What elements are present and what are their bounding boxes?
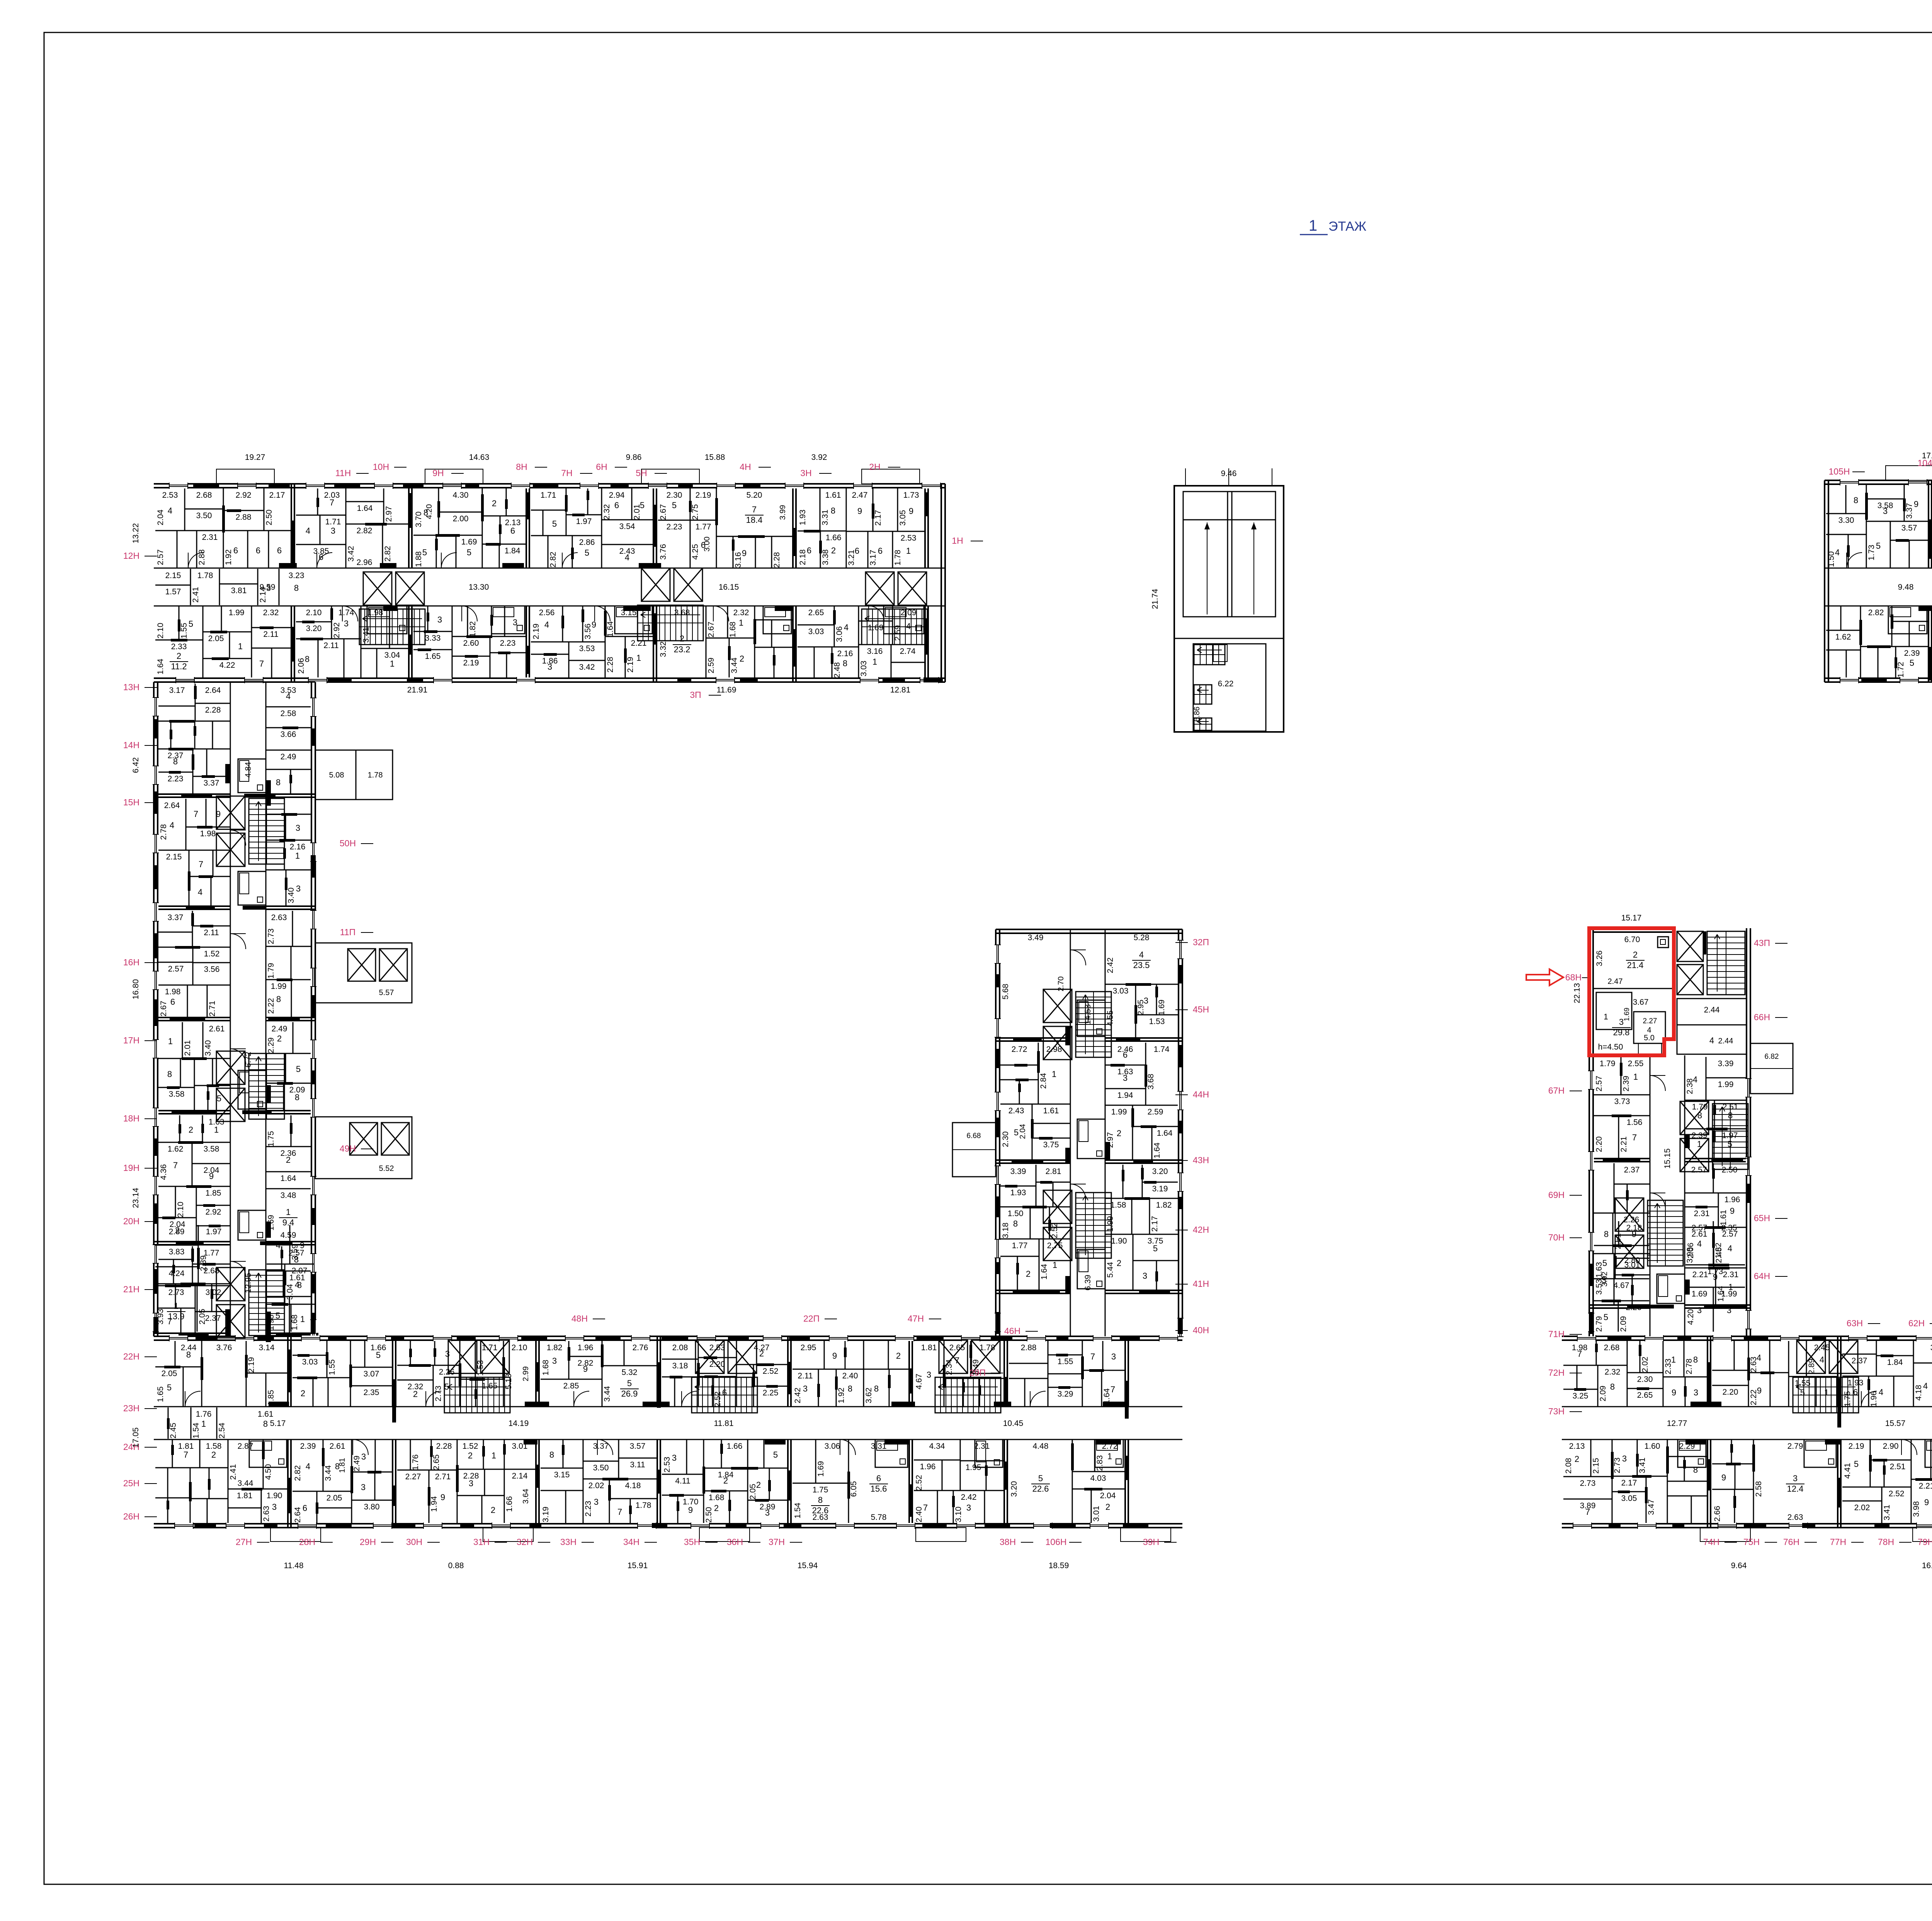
- svg-text:2.19: 2.19: [696, 491, 711, 500]
- svg-text:2.05: 2.05: [208, 634, 224, 643]
- svg-text:2.50: 2.50: [704, 1507, 713, 1523]
- svg-text:3.44: 3.44: [730, 657, 739, 673]
- svg-text:67Н: 67Н: [1548, 1086, 1565, 1096]
- svg-text:37Н: 37Н: [769, 1537, 785, 1547]
- svg-text:2.30: 2.30: [1001, 1132, 1010, 1147]
- svg-text:2.35: 2.35: [364, 1388, 379, 1397]
- svg-text:2: 2: [680, 634, 684, 643]
- svg-text:2.72: 2.72: [1102, 1442, 1118, 1451]
- svg-text:7: 7: [199, 859, 203, 869]
- svg-text:4: 4: [1647, 1026, 1651, 1035]
- svg-text:79Н: 79Н: [1918, 1537, 1932, 1547]
- svg-text:2.02: 2.02: [1641, 1357, 1650, 1373]
- svg-text:43П: 43П: [1754, 938, 1770, 948]
- svg-text:3.66: 3.66: [281, 730, 296, 739]
- svg-text:18.59: 18.59: [1049, 1561, 1069, 1570]
- svg-text:1.71: 1.71: [541, 491, 556, 500]
- svg-text:1.65: 1.65: [482, 1382, 498, 1390]
- svg-text:2.95: 2.95: [801, 1343, 816, 1352]
- svg-text:3.73: 3.73: [1614, 1097, 1630, 1106]
- svg-text:1.98: 1.98: [267, 1315, 276, 1331]
- svg-text:2: 2: [740, 654, 744, 664]
- svg-text:15Н: 15Н: [123, 797, 139, 807]
- svg-text:15.17: 15.17: [1621, 914, 1642, 922]
- svg-text:5.57: 5.57: [379, 989, 394, 997]
- svg-text:2.65: 2.65: [949, 1343, 965, 1352]
- svg-text:3.41: 3.41: [1638, 1458, 1647, 1474]
- svg-text:2.52: 2.52: [1889, 1489, 1905, 1498]
- svg-text:2.63: 2.63: [271, 913, 287, 922]
- svg-text:1: 1: [295, 851, 300, 861]
- svg-text:2.81: 2.81: [1046, 1167, 1061, 1176]
- svg-text:6: 6: [878, 546, 883, 556]
- svg-text:8: 8: [276, 778, 281, 787]
- svg-text:2: 2: [468, 1451, 473, 1460]
- svg-text:2.08: 2.08: [672, 1343, 688, 1352]
- svg-text:1: 1: [492, 1451, 496, 1460]
- svg-text:4.25: 4.25: [691, 544, 700, 560]
- svg-text:2.63: 2.63: [1787, 1513, 1803, 1522]
- svg-text:2.52: 2.52: [915, 1475, 923, 1491]
- svg-text:6: 6: [233, 546, 238, 555]
- svg-text:3.03: 3.03: [808, 627, 824, 636]
- svg-text:2.43: 2.43: [1009, 1106, 1024, 1115]
- svg-text:2: 2: [759, 1349, 764, 1358]
- svg-text:3.10: 3.10: [954, 1507, 963, 1523]
- svg-text:69Н: 69Н: [1548, 1190, 1565, 1200]
- svg-text:12.81: 12.81: [890, 686, 911, 694]
- svg-text:2.45: 2.45: [169, 1423, 178, 1439]
- svg-text:1.92: 1.92: [224, 550, 233, 565]
- svg-text:3.40: 3.40: [287, 888, 296, 903]
- svg-text:2.66: 2.66: [1713, 1506, 1722, 1522]
- svg-text:2.10: 2.10: [156, 623, 165, 639]
- svg-text:1.93: 1.93: [1848, 1378, 1864, 1387]
- svg-text:2.19: 2.19: [463, 658, 479, 667]
- svg-text:1.52: 1.52: [463, 1442, 478, 1451]
- svg-text:4: 4: [170, 820, 174, 830]
- svg-text:2: 2: [1026, 1269, 1031, 1279]
- svg-text:1.61: 1.61: [258, 1410, 274, 1419]
- svg-text:3: 3: [1697, 1305, 1702, 1315]
- svg-text:2.40: 2.40: [842, 1371, 858, 1380]
- svg-text:3.58: 3.58: [169, 1090, 185, 1099]
- svg-text:3.48: 3.48: [281, 1191, 296, 1200]
- svg-text:4.20: 4.20: [425, 504, 434, 519]
- svg-text:18.4: 18.4: [746, 515, 763, 525]
- svg-text:1.96: 1.96: [578, 1343, 594, 1352]
- svg-text:1: 1: [1107, 1451, 1112, 1461]
- svg-text:23Н: 23Н: [123, 1403, 139, 1413]
- svg-text:8: 8: [1013, 1219, 1018, 1228]
- svg-text:9: 9: [1632, 1229, 1636, 1239]
- svg-text:9: 9: [1914, 499, 1918, 509]
- svg-text:3.80: 3.80: [364, 1502, 380, 1511]
- svg-text:12.4: 12.4: [1787, 1484, 1804, 1494]
- svg-text:3.92: 3.92: [811, 453, 827, 462]
- svg-text:15.91: 15.91: [628, 1561, 648, 1570]
- svg-text:2.11: 2.11: [263, 630, 278, 639]
- svg-text:14.63: 14.63: [469, 453, 490, 462]
- svg-text:14Н: 14Н: [123, 740, 139, 750]
- svg-text:2.59: 2.59: [1148, 1108, 1163, 1116]
- svg-text:2: 2: [277, 1034, 282, 1043]
- svg-text:2.49: 2.49: [281, 752, 296, 761]
- svg-text:1.57: 1.57: [165, 587, 181, 596]
- svg-text:3.59: 3.59: [291, 1244, 299, 1260]
- svg-text:3.00: 3.00: [703, 537, 711, 552]
- svg-text:2.17: 2.17: [1621, 1479, 1637, 1487]
- svg-text:3.07: 3.07: [364, 1370, 379, 1378]
- svg-text:3: 3: [296, 823, 300, 833]
- svg-text:4.24: 4.24: [169, 1269, 185, 1278]
- svg-text:46Н: 46Н: [1004, 1326, 1020, 1336]
- svg-text:3.53: 3.53: [579, 644, 595, 653]
- svg-text:3.19: 3.19: [1152, 1184, 1168, 1193]
- svg-text:2.21: 2.21: [1919, 1482, 1932, 1491]
- svg-text:3.76: 3.76: [216, 1343, 232, 1352]
- svg-text:5: 5: [296, 1064, 301, 1074]
- svg-text:5.28: 5.28: [1134, 933, 1150, 942]
- svg-text:2.22: 2.22: [267, 998, 276, 1014]
- svg-text:1.66: 1.66: [826, 533, 842, 542]
- svg-text:1.69: 1.69: [267, 1215, 276, 1231]
- svg-text:3.06: 3.06: [835, 626, 844, 642]
- svg-text:74Н: 74Н: [1703, 1537, 1719, 1547]
- svg-text:2.85: 2.85: [563, 1382, 579, 1390]
- svg-text:3: 3: [272, 1502, 277, 1512]
- svg-text:2.82: 2.82: [383, 546, 392, 562]
- svg-text:1.97: 1.97: [206, 1227, 222, 1236]
- svg-text:2.29: 2.29: [1679, 1442, 1695, 1451]
- svg-text:63Н: 63Н: [1847, 1318, 1863, 1328]
- svg-text:9.48: 9.48: [1898, 583, 1914, 592]
- svg-text:2.84: 2.84: [1039, 1073, 1048, 1089]
- svg-text:8: 8: [1693, 1355, 1698, 1365]
- svg-text:4.67: 4.67: [915, 1374, 923, 1390]
- svg-text:9: 9: [688, 1505, 693, 1515]
- svg-text:2: 2: [301, 1388, 305, 1398]
- svg-text:2: 2: [1633, 950, 1638, 960]
- svg-text:2.42: 2.42: [1106, 958, 1115, 973]
- svg-text:2.17: 2.17: [269, 491, 285, 500]
- svg-text:3.70: 3.70: [414, 512, 423, 527]
- svg-text:3.75: 3.75: [1043, 1140, 1059, 1149]
- svg-text:5: 5: [1602, 1258, 1607, 1268]
- svg-text:3: 3: [1793, 1474, 1798, 1483]
- svg-text:2.97: 2.97: [384, 506, 393, 522]
- svg-text:105Н: 105Н: [1829, 466, 1850, 476]
- svg-text:1.77: 1.77: [696, 522, 711, 531]
- svg-text:2.75: 2.75: [691, 504, 700, 520]
- svg-text:3.50: 3.50: [196, 511, 212, 520]
- svg-text:3П: 3П: [690, 690, 701, 700]
- svg-text:1.94: 1.94: [1117, 1091, 1133, 1100]
- svg-text:2.99: 2.99: [522, 1366, 530, 1382]
- svg-text:2.65: 2.65: [808, 608, 824, 617]
- svg-text:2.21: 2.21: [631, 639, 647, 648]
- svg-text:9.46: 9.46: [1221, 469, 1237, 478]
- svg-text:2.32: 2.32: [1605, 1368, 1621, 1377]
- svg-text:2.40: 2.40: [915, 1507, 923, 1523]
- svg-text:h=4.50: h=4.50: [1598, 1043, 1623, 1052]
- svg-text:5Н: 5Н: [636, 468, 647, 478]
- svg-text:5.17: 5.17: [270, 1419, 286, 1428]
- svg-text:1.97: 1.97: [576, 517, 592, 526]
- svg-text:1.81: 1.81: [921, 1343, 937, 1352]
- svg-text:2.39: 2.39: [1622, 1076, 1631, 1092]
- svg-text:2.57: 2.57: [156, 550, 165, 565]
- svg-text:9: 9: [583, 1364, 588, 1374]
- svg-text:3.38: 3.38: [821, 550, 830, 565]
- svg-text:3.15: 3.15: [554, 1470, 570, 1479]
- svg-text:3.17: 3.17: [869, 550, 878, 566]
- svg-text:1.53: 1.53: [1149, 1017, 1165, 1026]
- svg-text:2.15: 2.15: [165, 571, 181, 580]
- svg-text:2.44: 2.44: [1718, 1037, 1733, 1045]
- svg-text:5.44: 5.44: [1106, 1262, 1115, 1278]
- svg-text:2.58: 2.58: [1754, 1481, 1763, 1497]
- svg-text:2.19: 2.19: [532, 624, 541, 640]
- svg-text:5: 5: [552, 519, 557, 529]
- svg-text:4.67: 4.67: [1614, 1281, 1629, 1290]
- svg-text:2.48: 2.48: [833, 662, 842, 678]
- svg-text:3.32: 3.32: [659, 641, 668, 657]
- svg-text:9: 9: [1730, 1206, 1735, 1216]
- svg-text:43Н: 43Н: [1193, 1155, 1209, 1165]
- svg-text:3.83: 3.83: [169, 1247, 185, 1256]
- svg-text:1.64: 1.64: [1157, 1129, 1173, 1138]
- svg-text:1.60: 1.60: [1645, 1442, 1660, 1451]
- svg-text:3.44: 3.44: [603, 1386, 612, 1402]
- svg-text:2.61: 2.61: [209, 1024, 225, 1033]
- svg-text:6: 6: [510, 526, 515, 536]
- svg-text:4: 4: [1139, 950, 1144, 960]
- svg-text:3: 3: [445, 1349, 450, 1359]
- svg-text:3.37: 3.37: [204, 779, 219, 788]
- svg-text:1.55: 1.55: [180, 623, 189, 639]
- svg-text:5.52: 5.52: [379, 1164, 394, 1173]
- svg-text:13.9: 13.9: [168, 1312, 185, 1321]
- svg-text:10Н: 10Н: [373, 462, 389, 472]
- svg-text:34Н: 34Н: [623, 1537, 639, 1547]
- svg-text:50Н: 50Н: [340, 838, 356, 848]
- svg-text:3.02: 3.02: [206, 1288, 221, 1297]
- svg-text:2.27: 2.27: [405, 1472, 421, 1481]
- svg-text:16.28: 16.28: [1922, 1561, 1932, 1570]
- svg-text:1: 1: [214, 1125, 219, 1135]
- svg-text:9: 9: [1757, 1386, 1762, 1395]
- svg-text:30Н: 30Н: [406, 1537, 422, 1547]
- svg-text:3.14: 3.14: [259, 1343, 275, 1352]
- svg-text:3.41: 3.41: [1883, 1505, 1891, 1521]
- svg-text:4: 4: [1879, 1387, 1883, 1397]
- svg-text:1.76: 1.76: [196, 1410, 212, 1419]
- svg-text:1.82: 1.82: [1714, 1243, 1723, 1259]
- svg-text:1.78: 1.78: [893, 550, 902, 566]
- svg-text:17.15: 17.15: [1922, 451, 1932, 460]
- svg-text:1.99: 1.99: [271, 982, 287, 991]
- svg-text:2.92: 2.92: [206, 1208, 221, 1217]
- svg-text:1.96: 1.96: [1869, 1391, 1878, 1407]
- svg-text:8: 8: [305, 654, 310, 664]
- svg-text:1.69: 1.69: [868, 623, 884, 632]
- svg-text:6: 6: [1123, 1050, 1128, 1060]
- svg-text:1: 1: [168, 1036, 173, 1046]
- svg-text:2.28: 2.28: [772, 552, 781, 568]
- svg-text:6: 6: [277, 546, 282, 555]
- svg-text:1.85: 1.85: [206, 1189, 221, 1198]
- svg-text:2.67: 2.67: [707, 622, 716, 638]
- svg-text:2.54: 2.54: [218, 1422, 226, 1438]
- svg-text:1: 1: [906, 546, 911, 556]
- svg-text:36Н: 36Н: [727, 1537, 743, 1547]
- svg-text:15.94: 15.94: [798, 1561, 818, 1570]
- svg-text:8: 8: [1610, 1382, 1615, 1392]
- svg-text:1.93: 1.93: [798, 510, 807, 526]
- svg-text:1.64: 1.64: [281, 1174, 296, 1183]
- svg-text:1.93: 1.93: [1010, 1188, 1026, 1197]
- svg-text:3: 3: [803, 1384, 808, 1394]
- svg-text:2.68: 2.68: [1604, 1343, 1620, 1352]
- svg-text:2.15: 2.15: [166, 852, 182, 861]
- svg-text:4.30: 4.30: [453, 491, 469, 500]
- svg-text:29Н: 29Н: [360, 1537, 376, 1547]
- svg-text:8: 8: [874, 1384, 879, 1394]
- svg-text:6.68: 6.68: [967, 1132, 981, 1140]
- svg-text:1.54: 1.54: [793, 1502, 802, 1518]
- svg-text:11.48: 11.48: [284, 1561, 304, 1570]
- svg-text:1.84: 1.84: [1887, 1358, 1903, 1367]
- svg-text:6: 6: [1853, 1387, 1858, 1397]
- svg-text:25Н: 25Н: [123, 1478, 139, 1488]
- svg-text:2.50: 2.50: [265, 510, 274, 526]
- svg-text:1.75: 1.75: [267, 1131, 276, 1147]
- svg-text:2.73: 2.73: [168, 1288, 184, 1297]
- svg-text:3.98: 3.98: [1912, 1501, 1921, 1517]
- svg-text:1.69: 1.69: [1157, 1000, 1166, 1016]
- svg-text:6: 6: [876, 1474, 881, 1483]
- svg-text:3.20: 3.20: [306, 624, 322, 633]
- svg-text:5: 5: [627, 1378, 632, 1388]
- svg-text:9Н: 9Н: [432, 468, 444, 478]
- svg-text:8: 8: [848, 1384, 852, 1394]
- svg-text:5.78: 5.78: [871, 1513, 887, 1522]
- svg-text:12Н: 12Н: [123, 551, 139, 561]
- svg-text:3: 3: [1727, 1305, 1731, 1315]
- svg-text:2.74: 2.74: [900, 647, 916, 656]
- svg-text:1: 1: [238, 641, 243, 651]
- svg-text:7: 7: [330, 498, 334, 507]
- svg-text:78Н: 78Н: [1878, 1537, 1894, 1547]
- svg-text:2.11: 2.11: [798, 1371, 813, 1380]
- svg-text:5: 5: [167, 1383, 172, 1392]
- svg-text:2: 2: [1117, 1258, 1121, 1268]
- svg-text:3.81: 3.81: [231, 586, 247, 595]
- svg-text:3.04: 3.04: [286, 1284, 294, 1300]
- svg-text:ЭТАЖ: ЭТАЖ: [1328, 219, 1366, 234]
- svg-text:16Н: 16Н: [123, 957, 139, 967]
- svg-text:2.64: 2.64: [293, 1507, 302, 1523]
- svg-text:2.23: 2.23: [168, 774, 184, 783]
- svg-text:5.20: 5.20: [747, 491, 762, 500]
- svg-text:7: 7: [184, 1450, 188, 1460]
- svg-text:1.64: 1.64: [156, 658, 165, 674]
- svg-text:8: 8: [1854, 495, 1858, 505]
- svg-text:9.64: 9.64: [1731, 1561, 1747, 1570]
- svg-text:7: 7: [923, 1503, 928, 1513]
- svg-text:1: 1: [1053, 1260, 1057, 1270]
- svg-text:2.65: 2.65: [1637, 1391, 1653, 1400]
- svg-text:8: 8: [818, 1495, 823, 1505]
- svg-text:8: 8: [167, 1069, 172, 1079]
- svg-text:2.37: 2.37: [205, 1314, 221, 1323]
- svg-text:3.39: 3.39: [1718, 1059, 1734, 1068]
- svg-text:5: 5: [1854, 1459, 1859, 1469]
- svg-text:1.64: 1.64: [1102, 1388, 1111, 1404]
- svg-text:22.13: 22.13: [1573, 983, 1582, 1004]
- svg-text:1.69: 1.69: [1623, 1007, 1631, 1021]
- svg-text:11.2: 11.2: [171, 662, 187, 671]
- svg-text:2.75: 2.75: [1047, 1241, 1063, 1250]
- svg-text:2.07: 2.07: [292, 1266, 308, 1275]
- svg-text:2.73: 2.73: [434, 1386, 443, 1402]
- svg-text:3.25: 3.25: [1573, 1392, 1588, 1400]
- svg-text:3.93: 3.93: [156, 1309, 165, 1325]
- svg-text:1.96: 1.96: [1725, 1195, 1740, 1204]
- svg-text:29.8: 29.8: [1613, 1028, 1630, 1037]
- svg-text:3: 3: [469, 1479, 473, 1488]
- svg-text:3.68: 3.68: [674, 608, 690, 617]
- svg-text:2.90: 2.90: [1883, 1442, 1899, 1451]
- svg-text:15.15: 15.15: [1663, 1149, 1672, 1169]
- svg-text:3.31: 3.31: [871, 1442, 887, 1451]
- svg-text:26Н: 26Н: [123, 1511, 139, 1521]
- svg-text:2: 2: [211, 1450, 216, 1460]
- svg-text:22.6: 22.6: [1032, 1484, 1049, 1494]
- svg-text:2.97: 2.97: [1106, 1132, 1115, 1148]
- svg-text:2.82: 2.82: [1868, 608, 1884, 617]
- svg-text:1.81: 1.81: [237, 1491, 253, 1500]
- svg-text:1.62: 1.62: [1835, 633, 1851, 641]
- svg-text:3.58: 3.58: [204, 1145, 219, 1154]
- svg-text:6.22: 6.22: [1218, 679, 1234, 688]
- svg-text:2.78: 2.78: [1685, 1359, 1694, 1375]
- svg-text:8: 8: [263, 1419, 268, 1429]
- svg-text:3.33: 3.33: [425, 634, 441, 643]
- svg-text:2.37: 2.37: [1624, 1166, 1640, 1174]
- svg-text:2: 2: [286, 1155, 291, 1165]
- svg-text:5.08: 5.08: [329, 771, 344, 779]
- svg-text:17.05: 17.05: [131, 1428, 140, 1448]
- svg-text:3: 3: [1883, 506, 1888, 516]
- svg-text:26.9: 26.9: [621, 1389, 638, 1399]
- svg-text:2.26: 2.26: [1626, 1303, 1642, 1312]
- svg-text:14.19: 14.19: [509, 1419, 529, 1428]
- svg-text:3: 3: [966, 1503, 971, 1513]
- svg-text:1.88: 1.88: [414, 551, 423, 567]
- svg-text:7: 7: [1111, 1385, 1115, 1394]
- svg-text:16.80: 16.80: [131, 979, 140, 1000]
- svg-text:2.86: 2.86: [579, 538, 595, 547]
- svg-text:4.22: 4.22: [219, 661, 235, 670]
- svg-text:3.56: 3.56: [204, 965, 220, 974]
- svg-text:9: 9: [440, 1492, 445, 1502]
- svg-text:2.13: 2.13: [1569, 1442, 1585, 1451]
- svg-text:3.03: 3.03: [1113, 987, 1129, 995]
- svg-text:2.56: 2.56: [539, 608, 555, 617]
- svg-text:45Н: 45Н: [1193, 1004, 1209, 1014]
